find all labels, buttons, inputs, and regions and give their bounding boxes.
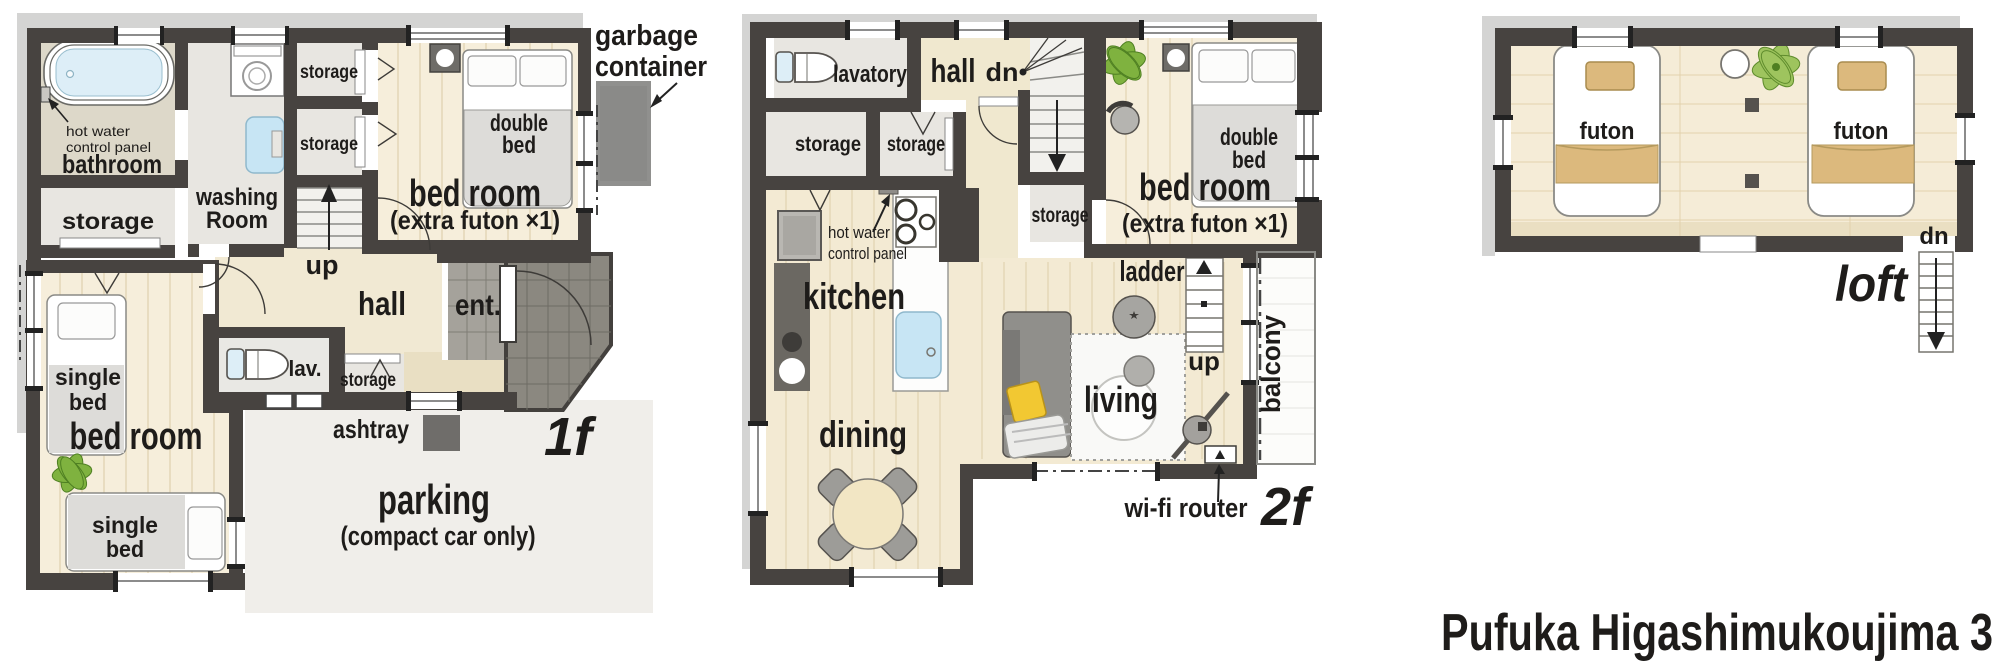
svg-text:1f: 1f	[544, 407, 597, 467]
svg-text:single: single	[55, 364, 121, 390]
svg-text:storage: storage	[300, 134, 358, 155]
svg-text:dining: dining	[819, 414, 907, 455]
svg-text:wi-fi router: wi-fi router	[1124, 493, 1248, 523]
svg-text:lav.: lav.	[289, 356, 322, 381]
svg-text:hot water: hot water	[66, 123, 130, 139]
svg-text:futon: futon	[1580, 118, 1635, 145]
svg-text:bed: bed	[502, 132, 536, 159]
svg-text:hall: hall	[358, 285, 406, 322]
svg-text:storage: storage	[1032, 204, 1089, 227]
svg-text:dn: dn	[986, 57, 1019, 87]
svg-text:parking: parking	[378, 476, 490, 523]
svg-text:hall: hall	[931, 52, 976, 89]
svg-text:control panel: control panel	[66, 139, 151, 155]
svg-text:storage: storage	[300, 62, 358, 83]
svg-text:dn: dn	[1919, 223, 1948, 250]
svg-text:Pufuka Higashimukoujima 3: Pufuka Higashimukoujima 3	[1441, 604, 1993, 662]
svg-text:up: up	[1188, 346, 1220, 376]
svg-text:2f: 2f	[1260, 477, 1314, 537]
svg-text:bed room: bed room	[1139, 167, 1271, 209]
svg-text:ladder: ladder	[1120, 256, 1185, 288]
svg-text:futon: futon	[1834, 118, 1889, 145]
svg-text:control panel: control panel	[828, 244, 907, 263]
svg-text:living: living	[1084, 379, 1158, 420]
svg-text:(extra futon ×1): (extra futon ×1)	[1122, 208, 1288, 238]
svg-text:storage: storage	[887, 133, 945, 156]
svg-text:loft: loft	[1835, 256, 1909, 312]
svg-text:kitchen: kitchen	[803, 276, 905, 317]
svg-text:lavatory: lavatory	[833, 61, 908, 88]
svg-text:(extra futon ×1): (extra futon ×1)	[390, 205, 560, 235]
svg-text:single: single	[92, 512, 158, 538]
svg-text:balcony: balcony	[1256, 315, 1286, 413]
svg-text:storage: storage	[795, 133, 861, 156]
svg-text:storage: storage	[62, 208, 154, 234]
svg-text:bed room: bed room	[70, 416, 203, 458]
svg-text:storage: storage	[340, 370, 396, 391]
svg-text:ent.: ent.	[455, 289, 501, 322]
svg-text:container: container	[595, 51, 707, 83]
svg-text:garbage: garbage	[595, 20, 698, 52]
svg-text:bed: bed	[69, 389, 107, 415]
svg-text:up: up	[306, 250, 339, 280]
svg-text:bed: bed	[106, 536, 144, 562]
svg-text:Room: Room	[206, 207, 268, 234]
svg-text:hot water: hot water	[828, 223, 890, 242]
svg-text:ashtray: ashtray	[333, 414, 409, 444]
svg-text:(compact car only): (compact car only)	[341, 521, 536, 551]
